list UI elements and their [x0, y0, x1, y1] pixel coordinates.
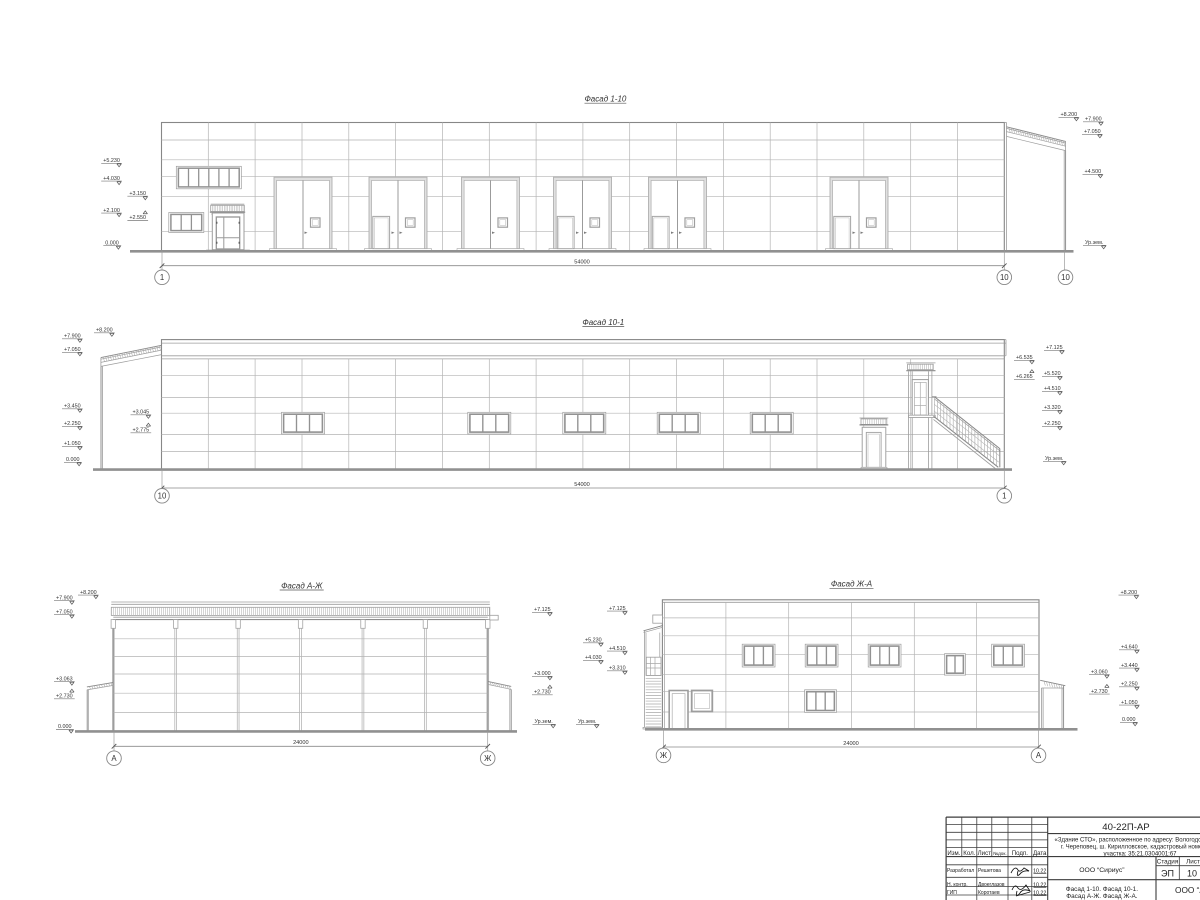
svg-text:А: А	[1036, 751, 1042, 760]
svg-text:10: 10	[158, 492, 167, 501]
svg-text:ЭП: ЭП	[1161, 869, 1174, 879]
svg-text:Кол.: Кол.	[963, 850, 975, 857]
svg-text:Разработал: Разработал	[947, 868, 974, 874]
svg-text:Фасад Ж-А: Фасад Ж-А	[831, 580, 872, 589]
svg-text:Ж: Ж	[484, 754, 492, 763]
svg-text:1: 1	[160, 273, 164, 282]
svg-text:Лист: Лист	[978, 850, 991, 857]
svg-text:24000: 24000	[293, 740, 309, 746]
svg-text:54000: 54000	[574, 482, 590, 488]
svg-text:Н. контр.: Н. контр.	[947, 882, 968, 888]
svg-text:Подп.: Подп.	[1012, 850, 1028, 857]
svg-text:Изм.: Изм.	[947, 850, 960, 857]
svg-text:Фасад 1-10: Фасад 1-10	[584, 95, 626, 104]
svg-text:г. Череповец, ш. Кирилловское,: г. Череповец, ш. Кирилловское, кадастров…	[1061, 844, 1200, 851]
svg-text:10: 10	[1061, 273, 1070, 282]
svg-text:Двоеглазов: Двоеглазов	[978, 882, 1005, 888]
svg-text:Коротаев: Коротаев	[978, 890, 1000, 896]
svg-text:ООО “Сириус”: ООО “Сириус”	[1079, 867, 1125, 874]
svg-text:54000: 54000	[574, 260, 590, 266]
svg-text:«Здание СТО», расположенное по: «Здание СТО», расположенное по адресу: В…	[1055, 838, 1200, 844]
svg-text:Фасад 10-1: Фасад 10-1	[582, 318, 624, 327]
svg-text:Решетова: Решетова	[978, 868, 1001, 874]
svg-text:10: 10	[1000, 273, 1009, 282]
svg-text:Стадия: Стадия	[1157, 859, 1178, 866]
svg-text:№док.: №док.	[993, 851, 1006, 856]
svg-text:Ж: Ж	[660, 751, 668, 760]
svg-text:Лист: Лист	[1186, 859, 1200, 866]
svg-text:24000: 24000	[843, 741, 859, 747]
svg-text:1: 1	[1002, 492, 1006, 501]
svg-text:Фасад 1-10. Фасад 10-1.: Фасад 1-10. Фасад 10-1.	[1066, 886, 1138, 893]
svg-text:Фасад А-Ж: Фасад А-Ж	[281, 581, 323, 590]
svg-text:ООО “Альянс”: ООО “Альянс”	[1175, 885, 1200, 895]
svg-text:Дата: Дата	[1033, 850, 1047, 857]
svg-text:ГИП: ГИП	[947, 890, 957, 896]
svg-text:40-22П-АР: 40-22П-АР	[1102, 822, 1149, 833]
svg-text:А: А	[111, 754, 117, 763]
svg-text:10: 10	[1187, 869, 1197, 879]
svg-text:Фасад А-Ж. Фасад Ж-А.: Фасад А-Ж. Фасад Ж-А.	[1066, 893, 1137, 900]
svg-text:участка: 35:21.0304001:67: участка: 35:21.0304001:67	[1103, 851, 1177, 857]
